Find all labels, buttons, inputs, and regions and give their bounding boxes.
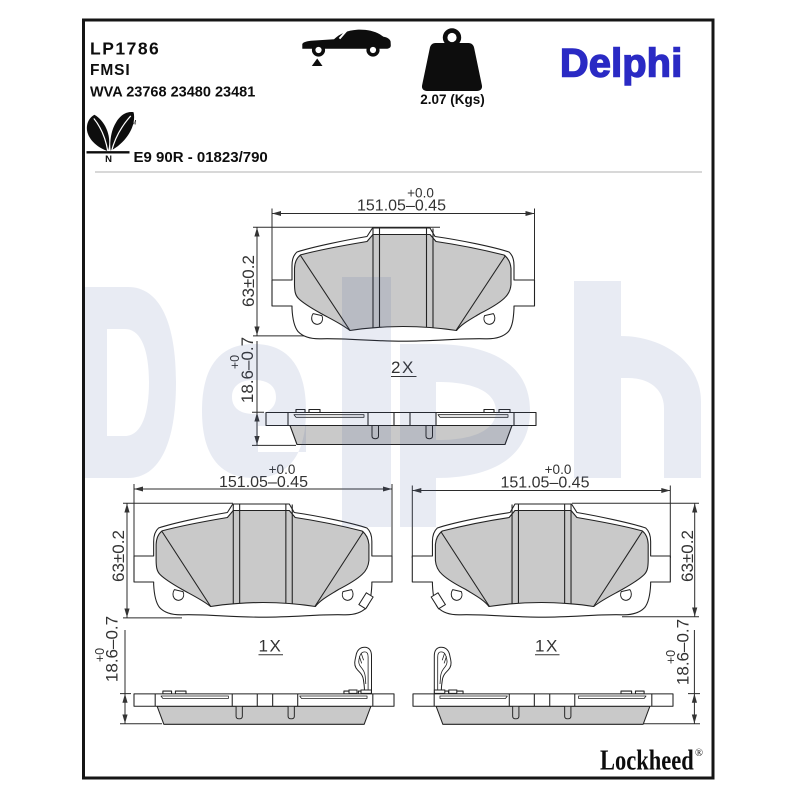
- svg-text:1X: 1X: [535, 637, 559, 656]
- svg-text:E9 90R - 01823/790: E9 90R - 01823/790: [134, 149, 268, 166]
- svg-text:2.07 (Kgs): 2.07 (Kgs): [420, 92, 485, 107]
- svg-text:FMSI: FMSI: [90, 62, 131, 79]
- svg-text:63±0.2: 63±0.2: [678, 530, 697, 582]
- svg-text:+0: +0: [93, 648, 107, 662]
- svg-text:63±0.2: 63±0.2: [109, 530, 128, 582]
- svg-text:Lockheed: Lockheed: [600, 744, 694, 776]
- svg-text:63±0.2: 63±0.2: [239, 255, 258, 307]
- svg-text:N: N: [105, 154, 112, 165]
- svg-text:®: ®: [695, 748, 703, 759]
- svg-text:LP1786: LP1786: [90, 39, 160, 59]
- svg-text:+0: +0: [664, 650, 678, 664]
- svg-text:151.05–0.45: 151.05–0.45: [357, 198, 446, 215]
- svg-text:WVA 23768 23480 23481: WVA 23768 23480 23481: [90, 85, 255, 101]
- svg-text:Delphi: Delphi: [560, 42, 683, 86]
- svg-text:TM: TM: [128, 121, 136, 127]
- svg-text:1X: 1X: [259, 637, 283, 656]
